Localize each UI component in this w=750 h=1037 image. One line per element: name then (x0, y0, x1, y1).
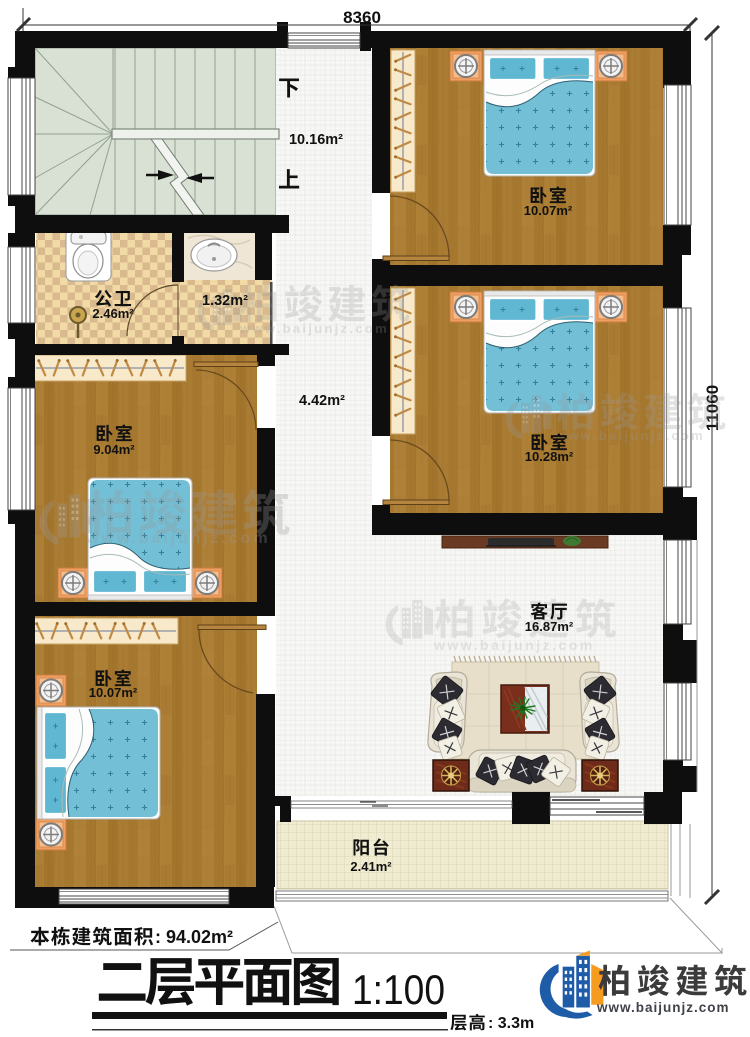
svg-text:: 3.3m: : 3.3m (488, 1015, 534, 1032)
svg-text:8360: 8360 (343, 8, 381, 27)
svg-text:2.46m²: 2.46m² (92, 306, 134, 321)
svg-text:www.baijunjz.com: www.baijunjz.com (239, 321, 389, 336)
svg-text:www.baijunjz.com: www.baijunjz.com (596, 1000, 730, 1015)
svg-text:1:100: 1:100 (352, 966, 445, 1013)
svg-text:www.baijunjz.com: www.baijunjz.com (85, 530, 271, 547)
svg-text:10.07m²: 10.07m² (89, 685, 138, 700)
svg-text:www.baijunjz.com: www.baijunjz.com (433, 637, 595, 653)
svg-text:16.87m²: 16.87m² (525, 619, 574, 634)
svg-text:9.04m²: 9.04m² (93, 442, 135, 457)
svg-text:www.baijunjz.com: www.baijunjz.com (555, 428, 705, 443)
svg-text:: 94.02m²: : 94.02m² (155, 927, 233, 947)
svg-text:10.28m²: 10.28m² (525, 449, 574, 464)
svg-text:1.32m²: 1.32m² (202, 293, 248, 309)
svg-text:2.41m²: 2.41m² (350, 859, 392, 874)
svg-text:4.42m²: 4.42m² (299, 393, 345, 409)
svg-text:10.07m²: 10.07m² (524, 203, 573, 218)
svg-text:10.16m²: 10.16m² (289, 132, 343, 148)
